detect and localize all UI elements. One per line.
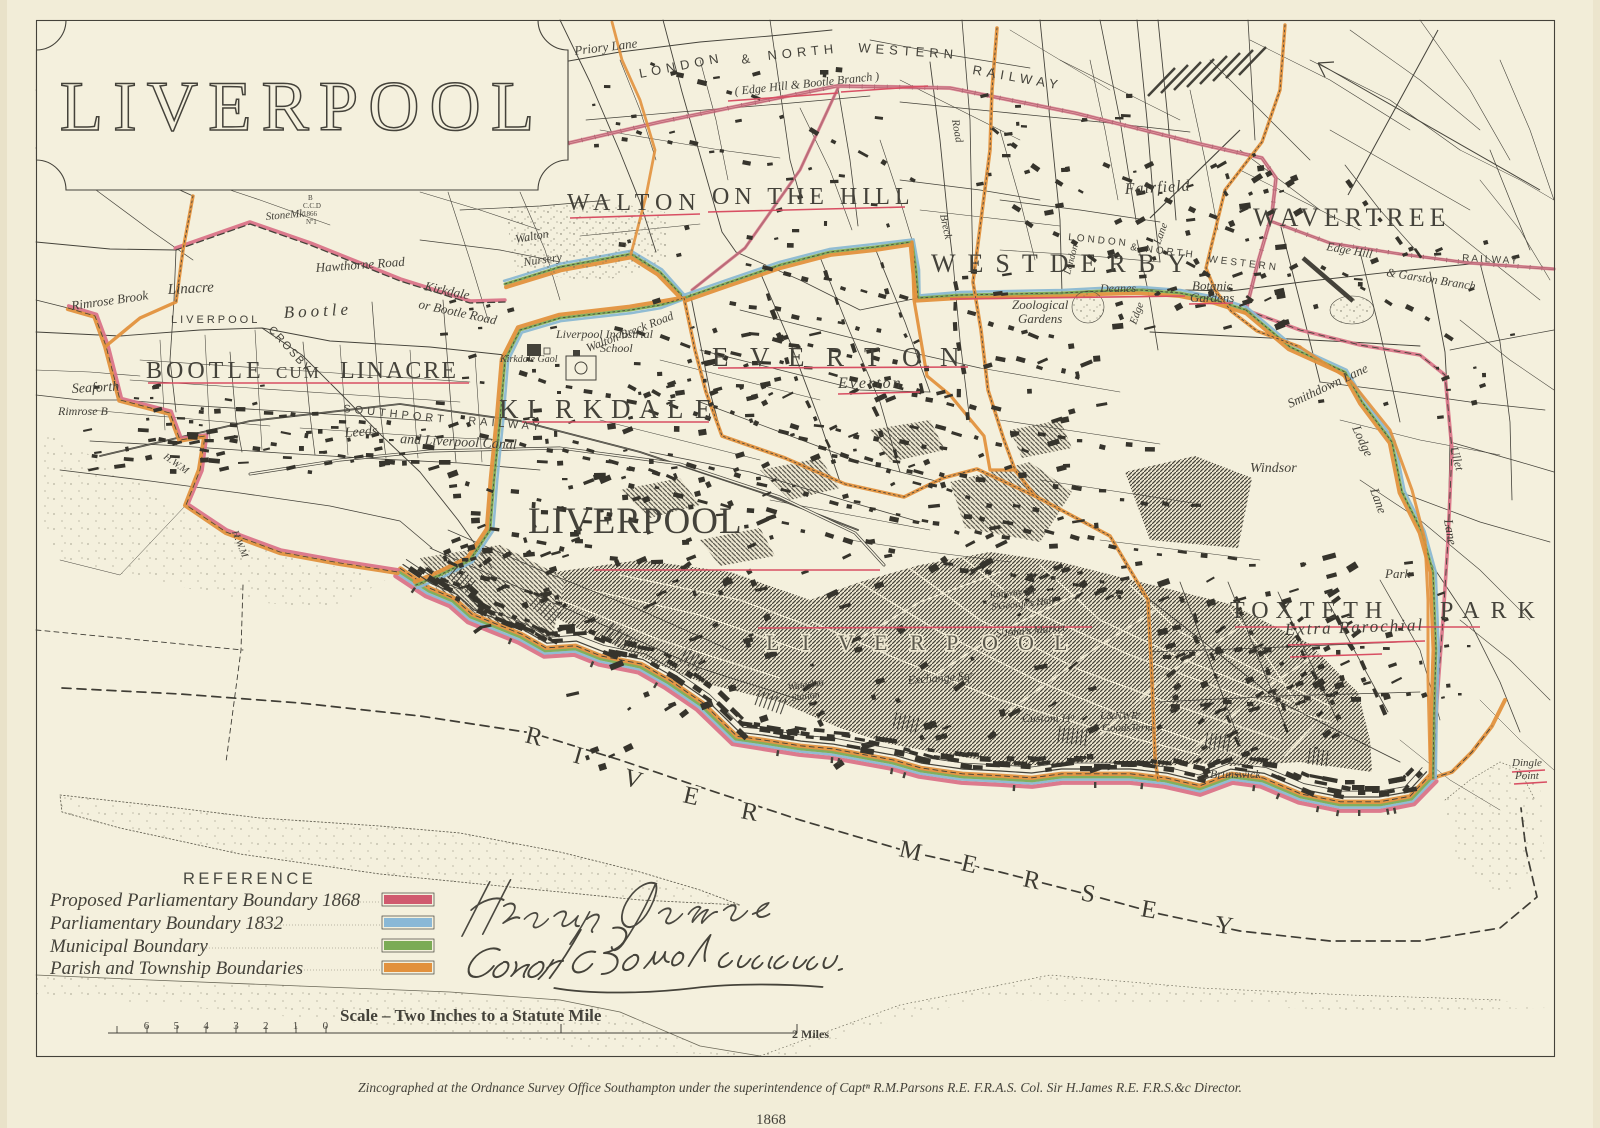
svg-text:Gardens: Gardens (1190, 290, 1234, 305)
svg-text:Y: Y (1213, 911, 1235, 940)
svg-text:Zincographed at the Ordnance S: Zincographed at the Ordnance Survey Offi… (358, 1080, 1242, 1095)
svg-text:B: B (308, 194, 313, 202)
svg-text:Deanes: Deanes (1099, 281, 1136, 295)
svg-text:WALTON: WALTON (567, 190, 702, 216)
svg-text:Dingle: Dingle (1511, 757, 1542, 769)
svg-text:C.C.D: C.C.D (303, 202, 321, 210)
svg-text:REFERENCE: REFERENCE (183, 870, 316, 888)
svg-text:2: 2 (263, 1020, 269, 1032)
svg-text:WAVERTREE: WAVERTREE (1253, 203, 1451, 232)
svg-text:LIVERPOOL: LIVERPOOL (171, 314, 260, 326)
svg-text:Scale – Two Inches to a Statut: Scale – Two Inches to a Statute Mile (340, 1006, 602, 1025)
svg-text:L: L (766, 630, 779, 655)
svg-text:LIVERPOOL: LIVERPOOL (60, 68, 544, 146)
svg-text:1: 1 (293, 1020, 299, 1032)
svg-text:L&NWRʳ: L&NWRʳ (1099, 710, 1142, 722)
svg-text:E: E (874, 630, 887, 655)
svg-text:6: 6 (144, 1020, 150, 1032)
svg-text:Proposed Parliamentary Boundar: Proposed Parliamentary Boundary 1868 (49, 890, 361, 911)
svg-text:2 Miles: 2 Miles (792, 1027, 829, 1041)
svg-text:P: P (946, 630, 958, 655)
svg-text:E: E (788, 342, 805, 372)
svg-text:School: School (600, 341, 633, 355)
svg-text:ON THE HILL: ON THE HILL (712, 184, 915, 210)
svg-text:R: R (826, 342, 844, 372)
svg-text:R: R (910, 630, 925, 655)
svg-text:L: L (667, 394, 684, 424)
svg-text:I: I (802, 630, 809, 655)
svg-text:R: R (555, 394, 573, 424)
svg-text:Custom Hᵒ: Custom Hᵒ (1022, 711, 1074, 725)
svg-text:K: K (583, 394, 603, 424)
svg-text:O: O (902, 342, 922, 372)
svg-text:Kirkdale Gaol: Kirkdale Gaol (499, 354, 558, 365)
svg-text:Fairfield: Fairfield (1123, 178, 1191, 198)
svg-text:LINACRE: LINACRE (340, 358, 458, 384)
svg-text:V: V (838, 630, 854, 655)
svg-text:V: V (750, 342, 770, 372)
svg-text:5: 5 (174, 1020, 180, 1032)
svg-text:4: 4 (203, 1020, 209, 1032)
svg-text:1866: 1866 (303, 210, 318, 218)
svg-text:0: 0 (323, 1020, 329, 1032)
svg-text:D: D (611, 394, 631, 424)
svg-text:E: E (695, 394, 712, 424)
svg-text:Zoological: Zoological (1012, 297, 1069, 312)
svg-text:Brunswick: Brunswick (1210, 767, 1261, 781)
svg-text:Linacre: Linacre (166, 280, 214, 298)
svg-text:1868: 1868 (756, 1112, 786, 1128)
svg-text:PARK: PARK (1440, 598, 1546, 624)
svg-text:Park: Park (1384, 566, 1411, 581)
svg-text:Parliamentary Boundary 1832: Parliamentary Boundary 1832 (49, 913, 284, 934)
svg-text:N: N (940, 342, 960, 372)
svg-text:Parish and Township Boundaries: Parish and Township Boundaries (49, 958, 303, 979)
svg-text:LIVERPOOL: LIVERPOOL (528, 501, 743, 542)
svg-text:Rimrose B: Rimrose B (57, 404, 109, 418)
svg-text:Liverpool Industrial: Liverpool Industrial (555, 327, 654, 341)
svg-text:Nº1: Nº1 (306, 218, 317, 226)
svg-text:T: T (864, 342, 881, 372)
svg-text:GoodsTerm: GoodsTerm (1102, 722, 1153, 734)
svg-text:BOOTLE: BOOTLE (146, 358, 265, 384)
svg-text:Windsor: Windsor (1250, 461, 1297, 476)
svg-text:Municipal Boundary: Municipal Boundary (49, 936, 208, 957)
svg-text:Gardens: Gardens (1018, 311, 1062, 326)
svg-text:Everton: Everton (837, 375, 903, 392)
svg-text:Seaforth: Seaforth (71, 380, 119, 397)
svg-text:Point: Point (1514, 770, 1540, 782)
svg-text:Leeds: Leeds (343, 424, 378, 441)
svg-text:E: E (712, 342, 729, 372)
svg-text:Bootle: Bootle (283, 299, 352, 322)
svg-text:A: A (639, 394, 659, 424)
svg-text:3: 3 (233, 1020, 239, 1032)
